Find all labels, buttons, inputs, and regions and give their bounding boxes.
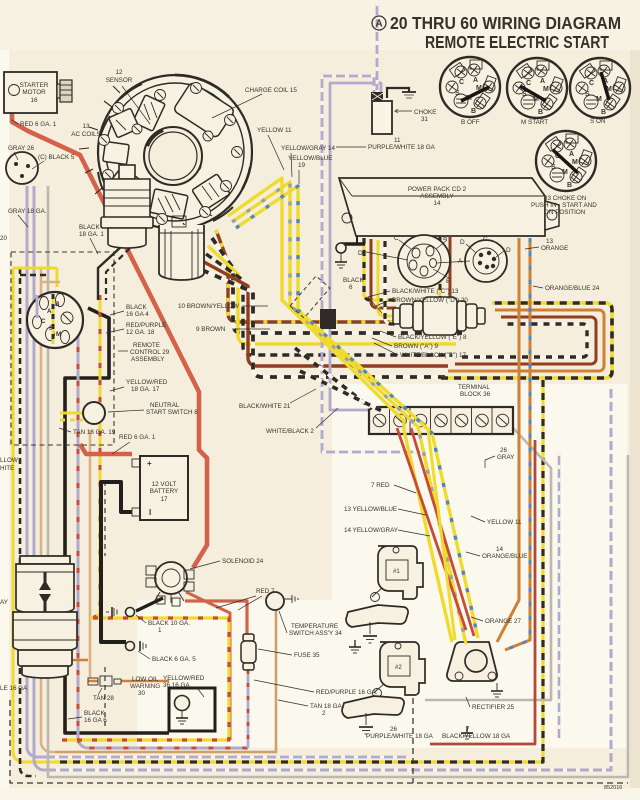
svg-text:852016: 852016 (604, 785, 622, 791)
svg-text:FUSE 35: FUSE 35 (294, 652, 320, 659)
svg-text:YELLOW/GRAY 14: YELLOW/GRAY 14 (281, 145, 336, 152)
svg-text:12 GA. 18: 12 GA. 18 (126, 329, 155, 336)
svg-text:B: B (443, 235, 447, 242)
svg-text:A: A (458, 258, 463, 265)
svg-text:POWER PACK CD 2: POWER PACK CD 2 (408, 186, 467, 193)
svg-text:RED/PURPLE 16 GA.: RED/PURPLE 16 GA. (316, 689, 378, 696)
svg-text:#1: #1 (393, 569, 400, 575)
svg-text:YELLOW 11: YELLOW 11 (487, 519, 522, 526)
svg-text:17: 17 (160, 496, 168, 503)
svg-text:RED 7: RED 7 (256, 588, 275, 595)
svg-text:20: 20 (0, 235, 8, 242)
svg-text:CHOKE: CHOKE (414, 109, 436, 116)
svg-text:RED/PURPLE: RED/PURPLE (126, 322, 166, 329)
svg-text:I: I (149, 508, 151, 517)
svg-text:BLACK/WHITE ("C") 13: BLACK/WHITE ("C") 13 (392, 288, 459, 295)
svg-text:GRAY: GRAY (497, 454, 515, 461)
svg-text:WHITE/BLACK 2: WHITE/BLACK 2 (266, 428, 314, 435)
svg-text:ASSEMBLY: ASSEMBLY (420, 193, 454, 200)
svg-text:AY: AY (0, 599, 9, 606)
svg-text:TAN 18 GA. 19: TAN 18 GA. 19 (73, 429, 116, 436)
svg-text:WHITE/BLACK ("B") 17: WHITE/BLACK ("B") 17 (400, 352, 467, 359)
svg-text:ORANGE/BLUE 24: ORANGE/BLUE 24 (545, 285, 600, 292)
svg-text:RECTIFIER 25: RECTIFIER 25 (472, 704, 514, 711)
svg-text:1: 1 (158, 627, 162, 634)
svg-text:SOLENOID 24: SOLENOID 24 (222, 558, 264, 565)
svg-text:20 THRU 60 WIRING DIAGRAM: 20 THRU 60 WIRING DIAGRAM (390, 13, 621, 33)
svg-text:MOTOR: MOTOR (22, 89, 46, 96)
svg-text:M: M (56, 331, 61, 338)
svg-text:B: B (55, 301, 60, 308)
svg-text:LE 16 GA: LE 16 GA (0, 685, 28, 692)
svg-text:D: D (506, 247, 511, 254)
svg-text:REMOTE ELECTRIC START: REMOTE ELECTRIC START (425, 32, 609, 52)
svg-text:16 GA 4: 16 GA 4 (126, 311, 149, 318)
svg-text:19: 19 (298, 162, 306, 169)
svg-text:7: 7 (466, 726, 470, 733)
svg-text:ORANGE/BLUE: ORANGE/BLUE (482, 553, 528, 560)
svg-text:13 YELLOW/BLUE: 13 YELLOW/BLUE (344, 506, 397, 513)
svg-text:26: 26 (500, 447, 508, 454)
svg-text:SWITCH ASS'Y 34: SWITCH ASS'Y 34 (289, 630, 342, 637)
svg-text:LLOW: LLOW (0, 457, 18, 464)
svg-text:C: C (41, 318, 46, 325)
svg-text:ORANGE 27: ORANGE 27 (485, 618, 522, 625)
svg-text:36 16 GA.: 36 16 GA. (163, 682, 192, 689)
svg-text:6: 6 (349, 284, 353, 291)
svg-text:C: C (483, 236, 488, 243)
svg-text:LOW OIL: LOW OIL (132, 676, 159, 683)
svg-text:16 GA 6: 16 GA 6 (84, 717, 107, 724)
svg-text:BLACK/YELLOW 18 GA: BLACK/YELLOW 18 GA (442, 733, 511, 740)
svg-text:WARNING: WARNING (130, 683, 160, 690)
svg-text:A: A (47, 308, 52, 315)
svg-text:9 BROWN: 9 BROWN (196, 326, 226, 333)
svg-text:HITE: HITE (0, 465, 14, 472)
svg-text:26: 26 (390, 726, 398, 733)
svg-text:AC COILS: AC COILS (71, 131, 100, 138)
svg-text:M START: M START (521, 119, 548, 126)
svg-text:30: 30 (138, 690, 146, 697)
svg-text:2: 2 (322, 710, 326, 717)
svg-text:ORANGE: ORANGE (541, 245, 568, 252)
svg-text:BLACK/YELLOW ("E") 8: BLACK/YELLOW ("E") 8 (398, 334, 467, 341)
svg-text:33 CHOKE ON: 33 CHOKE ON (544, 195, 587, 202)
svg-text:18 GA. 1: 18 GA. 1 (79, 231, 104, 238)
svg-text:BLOCK 36: BLOCK 36 (460, 391, 491, 398)
svg-text:YELLOW 11: YELLOW 11 (257, 127, 292, 134)
svg-text:YELLOW/BLUE: YELLOW/BLUE (288, 155, 332, 162)
svg-text:13: 13 (546, 238, 554, 245)
svg-text:REMOTE: REMOTE (133, 342, 160, 349)
svg-text:S ON: S ON (590, 118, 606, 125)
svg-text:ASSEMBLY: ASSEMBLY (131, 356, 165, 363)
svg-text:BLACK 6 GA. 5: BLACK 6 GA. 5 (152, 656, 196, 663)
svg-text:CHARGE COIL 15: CHARGE COIL 15 (245, 87, 297, 94)
svg-text:BATTERY: BATTERY (150, 488, 179, 495)
svg-text:E: E (446, 278, 451, 285)
svg-text:YELLOW/RED: YELLOW/RED (163, 675, 205, 682)
svg-text:RED 6 GA. 1: RED 6 GA. 1 (20, 121, 57, 128)
svg-text:12 VOLT: 12 VOLT (152, 481, 177, 488)
svg-text:10 BROWN/YELLOW: 10 BROWN/YELLOW (178, 303, 239, 310)
svg-text:14: 14 (433, 200, 441, 207)
svg-text:D: D (460, 239, 465, 246)
svg-text:+: + (147, 459, 152, 468)
svg-text:(C) BLACK 5: (C) BLACK 5 (38, 154, 75, 161)
svg-text:BROWN ("A") 9: BROWN ("A") 9 (394, 343, 438, 350)
svg-text:START SWITCH 8: START SWITCH 8 (146, 409, 198, 416)
svg-text:16: 16 (30, 97, 38, 104)
svg-text:TEMPERATURE: TEMPERATURE (291, 623, 338, 630)
svg-text:GRAY 18 GA.: GRAY 18 GA. (8, 208, 47, 215)
svg-text:14: 14 (496, 546, 504, 553)
svg-text:STARTER: STARTER (20, 82, 49, 89)
svg-text:TERMINAL: TERMINAL (458, 384, 490, 391)
svg-text:C: C (394, 235, 399, 242)
svg-text:18 GA. 17: 18 GA. 17 (131, 386, 160, 393)
svg-text:BLACK 10 GA.: BLACK 10 GA. (148, 620, 190, 627)
svg-text:11: 11 (394, 137, 401, 144)
svg-text:PURPLE/WHITE 18 GA: PURPLE/WHITE 18 GA (366, 733, 434, 740)
svg-text:31: 31 (421, 116, 429, 123)
svg-text:BROWN/YELLOW ("D") 20: BROWN/YELLOW ("D") 20 (392, 297, 468, 304)
svg-text:BLACK: BLACK (84, 710, 105, 717)
svg-text:BLACK: BLACK (79, 224, 100, 231)
svg-text:NEUTRAL: NEUTRAL (150, 402, 180, 409)
svg-text:RED 6 GA. 1: RED 6 GA. 1 (119, 434, 156, 441)
svg-text:BLACK: BLACK (343, 277, 364, 284)
svg-text:B OFF: B OFF (461, 119, 480, 126)
svg-text:SENSOR: SENSOR (106, 77, 133, 84)
svg-text:D: D (358, 250, 363, 257)
svg-text:PUSH IN - START AND: PUSH IN - START AND (531, 202, 597, 209)
svg-text:BLACK/WHITE 21: BLACK/WHITE 21 (239, 403, 291, 410)
svg-text:PURPLE/WHITE 18 GA: PURPLE/WHITE 18 GA (368, 144, 436, 151)
svg-text:TAN 18 GA.: TAN 18 GA. (310, 703, 344, 710)
svg-text:CONTROL 29: CONTROL 29 (130, 349, 170, 356)
svg-text:A: A (375, 19, 382, 30)
svg-text:#2: #2 (395, 665, 402, 671)
svg-text:13: 13 (82, 123, 90, 130)
svg-text:TAN 28: TAN 28 (93, 695, 114, 702)
svg-text:ON POSITION: ON POSITION (544, 209, 586, 216)
svg-text:14 YELLOW/GRAY: 14 YELLOW/GRAY (344, 527, 399, 534)
svg-text:12: 12 (115, 69, 123, 76)
svg-text:YELLOW/RED: YELLOW/RED (126, 379, 168, 386)
svg-text:7 RED: 7 RED (371, 482, 390, 489)
svg-text:BLACK: BLACK (126, 304, 147, 311)
svg-text:GRAY 26: GRAY 26 (8, 145, 35, 152)
